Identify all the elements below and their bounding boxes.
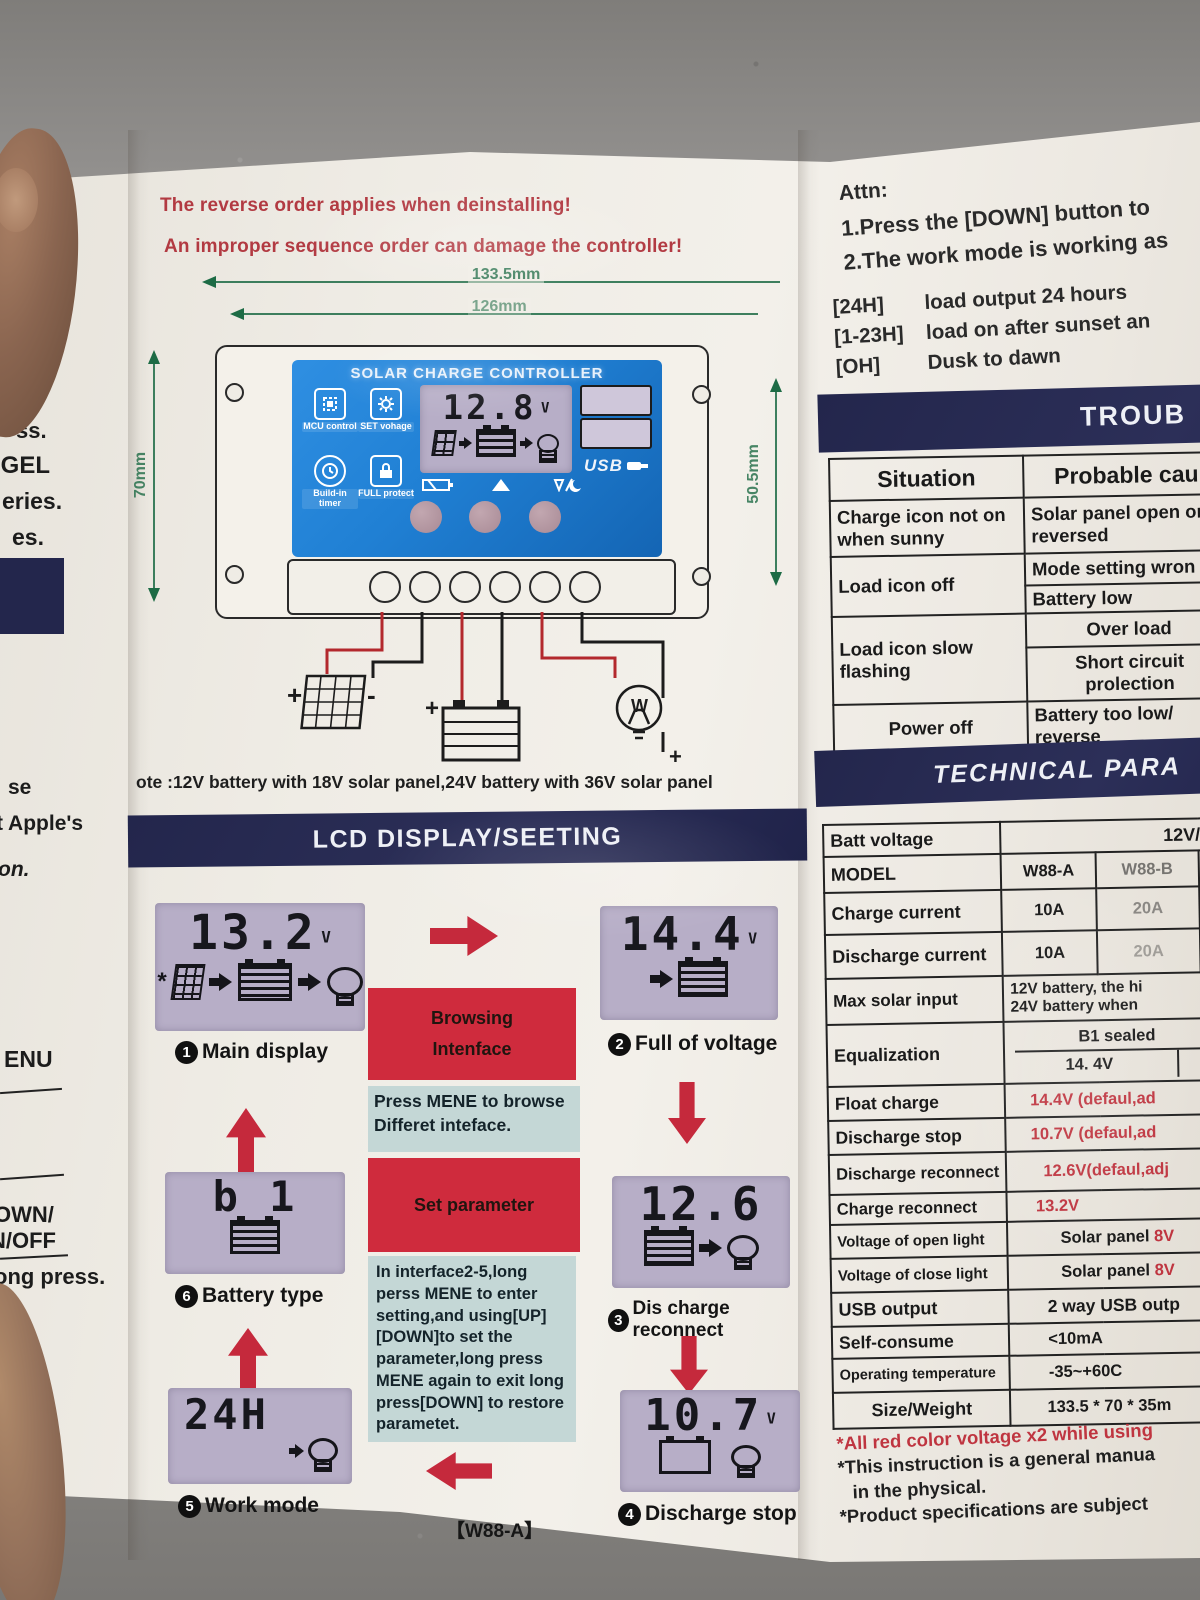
terminal (409, 571, 441, 603)
down-button[interactable] (529, 501, 561, 533)
number-badge: 5 (178, 1495, 201, 1518)
box-text: Intenface (432, 1034, 511, 1065)
feature-set-voltage: SET vohage (358, 388, 414, 432)
arrowhead-icon (770, 378, 782, 392)
tech-value-red: 12.6V(defaul,adj (1006, 1147, 1200, 1191)
screen-full-voltage: 14.4 V (600, 906, 778, 1020)
terminal (449, 571, 481, 603)
label-text: Full of voltage (635, 1032, 777, 1056)
left-fragment: es. (12, 524, 44, 551)
arrowhead-icon (770, 572, 782, 586)
terminal (569, 571, 601, 603)
arrow-right-icon (520, 437, 533, 449)
number-badge: 2 (608, 1033, 631, 1056)
red-up-arrow-icon (228, 1328, 268, 1394)
battery-indicator-icon (422, 478, 456, 492)
battery-drawing: + (425, 695, 519, 760)
tech-label: Max solar input (826, 976, 1004, 1025)
bulb-icon (731, 1445, 761, 1469)
bulb-icon (308, 1438, 338, 1463)
tech-label: Voltage of open light (830, 1222, 1008, 1259)
screw-hole-icon (692, 385, 711, 404)
tech-label: Discharge reconnect (829, 1152, 1007, 1195)
terminal (529, 571, 561, 603)
browsing-interface-box: Browsing Intenface (368, 988, 576, 1080)
box-text: Browsing (431, 1003, 513, 1034)
tech-value: Solar panel (1060, 1227, 1154, 1247)
tech-value: 10A (1001, 888, 1097, 932)
tech-value: W88-A (1001, 852, 1097, 890)
chip-icon (314, 388, 346, 420)
note-line: ote :12V battery with 18V solar panel,24… (136, 772, 713, 793)
tech-value-line: 24V battery when (1010, 995, 1200, 1017)
battery-icon (476, 429, 516, 457)
tech-value-red: 14.4V (defaul,ad (1005, 1079, 1200, 1117)
label-text: Work mode (205, 1494, 319, 1518)
feature-label: FULL protect (358, 489, 414, 499)
tech-value: 20A (1097, 928, 1200, 974)
usb-port-1 (580, 385, 652, 416)
solar-panel-drawing: + - (287, 676, 376, 728)
clock-icon (314, 455, 346, 487)
solar-panel-icon (170, 964, 205, 1000)
label-text: Discharge stop (645, 1502, 797, 1526)
red-right-arrow-icon (430, 916, 498, 956)
mode-desc: load on after sunset an (925, 309, 1150, 345)
press-mene-box: Press MENE to browse Differet inteface. (368, 1086, 580, 1152)
arrow-right-icon (650, 970, 673, 988)
dimension-50: 50.5mm (770, 378, 782, 586)
center-panel: The reverse order applies when deinstall… (130, 0, 805, 1600)
screen-discharge-reconnect: 12.6 (612, 1176, 790, 1288)
left-fragment: OWN/ (0, 1202, 54, 1228)
svg-text:+: + (669, 744, 682, 769)
dim-label-inner-width: 126mm (468, 298, 531, 316)
battery-icon (678, 961, 728, 997)
lcd-flow-icons (600, 961, 778, 997)
label-text: Dis charge reconnect (633, 1298, 805, 1342)
usb-plug-icon (626, 459, 652, 473)
bulb-drawing: W + (617, 686, 682, 769)
indicator-row (422, 478, 582, 492)
number-badge: 3 (608, 1309, 629, 1332)
sun-icon: * (157, 976, 166, 988)
screw-hole-icon (225, 565, 244, 584)
screen-full-label: 2 Full of voltage (608, 1032, 777, 1056)
feature-label: SET vohage (358, 422, 414, 432)
left-fragment: ong press. (0, 1264, 105, 1290)
feature-label: MCU control (302, 422, 358, 432)
mode-key: [OH] (835, 351, 928, 380)
tech-value: 2 way USB outp (1008, 1285, 1200, 1323)
box-text: Set parameter (414, 1195, 534, 1216)
bulb-icon (727, 1235, 759, 1261)
tech-value: <10mA (1009, 1319, 1200, 1355)
red-up-arrow-icon (226, 1108, 266, 1178)
tech-label: Charge current (824, 890, 1002, 935)
dimension-126: 126mm (230, 308, 758, 320)
mode-key: [1-23H] (834, 321, 927, 350)
feature-timer: Build-in timer (302, 455, 358, 509)
lcd-value: 12.6 (640, 1177, 763, 1231)
label-text: Battery type (202, 1284, 323, 1308)
lcd-voltage-unit: V (541, 401, 549, 417)
setting-instructions-box: In interface2-5,long perss MENE to enter… (368, 1256, 576, 1442)
screw-hole-icon (225, 383, 244, 402)
tech-label: Batt voltage (823, 822, 1001, 857)
up-button[interactable] (469, 501, 501, 533)
battery-icon (238, 963, 292, 1001)
trouble-header-text: TROUB (1080, 399, 1187, 433)
screen-stop-label: 4 Discharge stop (618, 1502, 797, 1526)
tech-label: Discharge stop (828, 1118, 1006, 1155)
lcd-unit: V (767, 1410, 776, 1428)
lcd-value: 24H (184, 1390, 269, 1439)
screen-work-mode: 24H (168, 1388, 352, 1484)
left-fragment: se (8, 776, 31, 800)
svg-text:+: + (287, 680, 302, 710)
controller-lcd: 12.8 V (420, 385, 572, 473)
usb-port-2 (580, 418, 652, 449)
screen-battery-label: 6 Battery type (175, 1284, 323, 1308)
tech-value-red: 10.7V (defaul,ad (1005, 1113, 1200, 1151)
tech-value: Solar panel (1061, 1261, 1155, 1281)
battery-icon (230, 1220, 280, 1254)
screen-work-label: 5 Work mode (178, 1494, 319, 1518)
label-text: Main display (202, 1040, 328, 1064)
arrowhead-icon (148, 350, 160, 364)
number-badge: 1 (175, 1041, 198, 1064)
arrow-right-icon (289, 1444, 304, 1458)
usb-label: USB (584, 456, 623, 476)
trouble-table: Situation Probable cau Charge icon not o… (828, 451, 1200, 756)
arrow-right-icon (459, 437, 472, 449)
svg-text:+: + (425, 695, 439, 722)
tech-value: 20A (1096, 886, 1199, 930)
menu-button[interactable] (410, 501, 442, 533)
screen-discharge-stop: 10.7 V (620, 1390, 800, 1492)
tech-label: MODEL (824, 854, 1002, 893)
tech-value-line: B1 sealed (1015, 1022, 1200, 1053)
lcd-flow-icons (612, 1230, 790, 1266)
tech-table: Batt voltage 12V/24V MODEL W88-A W88-B W… (822, 816, 1200, 1429)
tech-label: Voltage of close light (831, 1256, 1009, 1293)
svg-text:-: - (367, 680, 376, 710)
set-parameter-box: Set parameter (368, 1158, 580, 1252)
dim-label-outer-width: 133.5mm (468, 266, 545, 284)
left-fragment: on. (0, 858, 30, 882)
svg-text:W: W (631, 696, 648, 716)
lcd-value: b 1 (213, 1172, 298, 1221)
left-fragment: ,GEL (0, 452, 50, 480)
number-badge: 4 (618, 1503, 641, 1526)
arrowhead-icon (230, 308, 244, 320)
cause-cell: Over load (1026, 610, 1200, 648)
tech-header-text: TECHNICAL PARA (933, 752, 1182, 790)
terminal (489, 571, 521, 603)
tech-label: Float charge (828, 1084, 1006, 1121)
tech-label: Charge reconnect (829, 1192, 1007, 1225)
tech-label: USB output (831, 1290, 1009, 1327)
arrow-right-icon (699, 1239, 722, 1257)
wiring-diagram: + - + W + (215, 612, 735, 797)
col-header-cause: Probable cau (1023, 452, 1200, 498)
red-down-arrow-icon (668, 1082, 706, 1144)
situation-cell: Load icon off (831, 554, 1026, 617)
left-navy-block (0, 558, 64, 634)
warning-line-2: An improper sequence order can damage th… (164, 236, 682, 258)
left-fragment: eries. (2, 488, 62, 515)
lcd-value: 13.2 (189, 905, 317, 961)
number-badge: 6 (175, 1285, 198, 1308)
light-mode-icon (546, 478, 582, 492)
arrowhead-icon (148, 588, 160, 602)
tech-label: Discharge current (825, 932, 1003, 979)
cause-cell: Battery low (1025, 582, 1200, 614)
cause-cell: Short circuit prolection (1026, 644, 1200, 702)
lcd-flow-icons (420, 429, 572, 457)
mode-key: [24H] (832, 291, 925, 320)
tech-value-red: 13.2V (1007, 1187, 1200, 1221)
bulb-icon (537, 434, 559, 453)
lock-icon (370, 455, 402, 487)
tech-value-red: 8V (1154, 1226, 1174, 1244)
red-down-arrow-icon (670, 1336, 708, 1394)
lcd-value: 14.4 (621, 907, 744, 961)
dimension-133: 133.5mm (202, 276, 780, 288)
tech-value: 12V/24V (1000, 818, 1200, 854)
screen-main-label: 1 Main display (175, 1040, 328, 1064)
arrow-right-icon (209, 973, 232, 991)
lcd-section-header-text: LCD DISPLAY/SEETING (313, 822, 623, 854)
battery-icon (644, 1230, 694, 1266)
screen-battery-type: b 1 (165, 1172, 345, 1274)
tech-label: Equalization (827, 1022, 1005, 1087)
lcd-voltage-value: 12.8 (443, 388, 537, 428)
tech-label: Size/Weight (833, 1390, 1011, 1429)
tech-value: 10A (1002, 930, 1098, 976)
tech-value: -35~+60C (1010, 1351, 1200, 1389)
battery-empty-icon (659, 1440, 711, 1474)
terminal-strip (287, 559, 676, 615)
screen-main-display: 13.2 V * (155, 903, 365, 1031)
terminal (369, 571, 401, 603)
up-indicator-icon (491, 478, 511, 492)
tech-label: Operating temperature (832, 1356, 1010, 1393)
solar-panel-icon (431, 430, 457, 456)
dimension-70: 70mm (148, 350, 160, 602)
left-fragment: N/OFF (0, 1228, 56, 1254)
cause-cell: Mode setting wron (1025, 550, 1200, 586)
tech-value-red: 8V (1154, 1260, 1174, 1278)
lcd-unit: V (321, 928, 331, 947)
feature-mcu: MCU control (302, 388, 358, 432)
situation-cell: Charge icon not on when sunny (830, 498, 1025, 557)
feature-label: Build-in timer (302, 489, 358, 509)
model-footer: 【W88-A】 (446, 1516, 543, 1543)
lcd-section-header: LCD DISPLAY/SEETING (128, 808, 808, 867)
dim-label-height-left: 70mm (132, 452, 150, 498)
box-text: Press MENE to browse Differet inteface. (374, 1091, 565, 1135)
arrow-right-icon (298, 973, 321, 991)
lcd-flow-icons: * (155, 963, 365, 1001)
lcd-value: 10.7 (644, 1390, 762, 1441)
warning-line-1: The reverse order applies when deinstall… (160, 195, 571, 217)
bulb-icon (327, 967, 363, 997)
dim-label-height-right: 50.5mm (745, 445, 763, 505)
gear-icon (370, 388, 402, 420)
cause-cell: Solar panel open or reversed (1024, 494, 1200, 554)
tech-value-line: 14. 4V (1005, 1050, 1180, 1080)
lcd-flow-icons (620, 1440, 800, 1474)
controller-title: SOLAR CHARGE CONTROLLER (292, 365, 662, 382)
left-fragment: t Apple's (0, 812, 83, 836)
red-left-arrow-icon (426, 1452, 492, 1490)
controller-diagram: SOLAR CHARGE CONTROLLER MCU control SET … (215, 345, 709, 619)
screw-hole-icon (692, 567, 711, 586)
situation-cell: Load icon slow flashing (832, 614, 1028, 705)
feature-protect: FULL protect (358, 455, 414, 499)
controller-faceplate: SOLAR CHARGE CONTROLLER MCU control SET … (292, 360, 662, 557)
tech-value: W88-B (1096, 850, 1199, 888)
lcd-flow-icons (168, 1438, 338, 1463)
photo-of-manual: ss. ,GEL eries. es. se t Apple's on. ENU… (0, 0, 1200, 1600)
arrowhead-icon (202, 276, 216, 288)
tech-label: Self-consume (832, 1324, 1010, 1359)
lcd-unit: V (748, 930, 757, 948)
box-text: In interface2-5,long perss MENE to enter… (376, 1263, 564, 1433)
footnotes: *All red color voltage x2 while using *T… (836, 1415, 1200, 1530)
col-header-situation: Situation (829, 456, 1024, 501)
screen-reconnect-label: 3 Dis charge reconnect (608, 1298, 805, 1342)
left-fragment: ENU (4, 1046, 53, 1073)
